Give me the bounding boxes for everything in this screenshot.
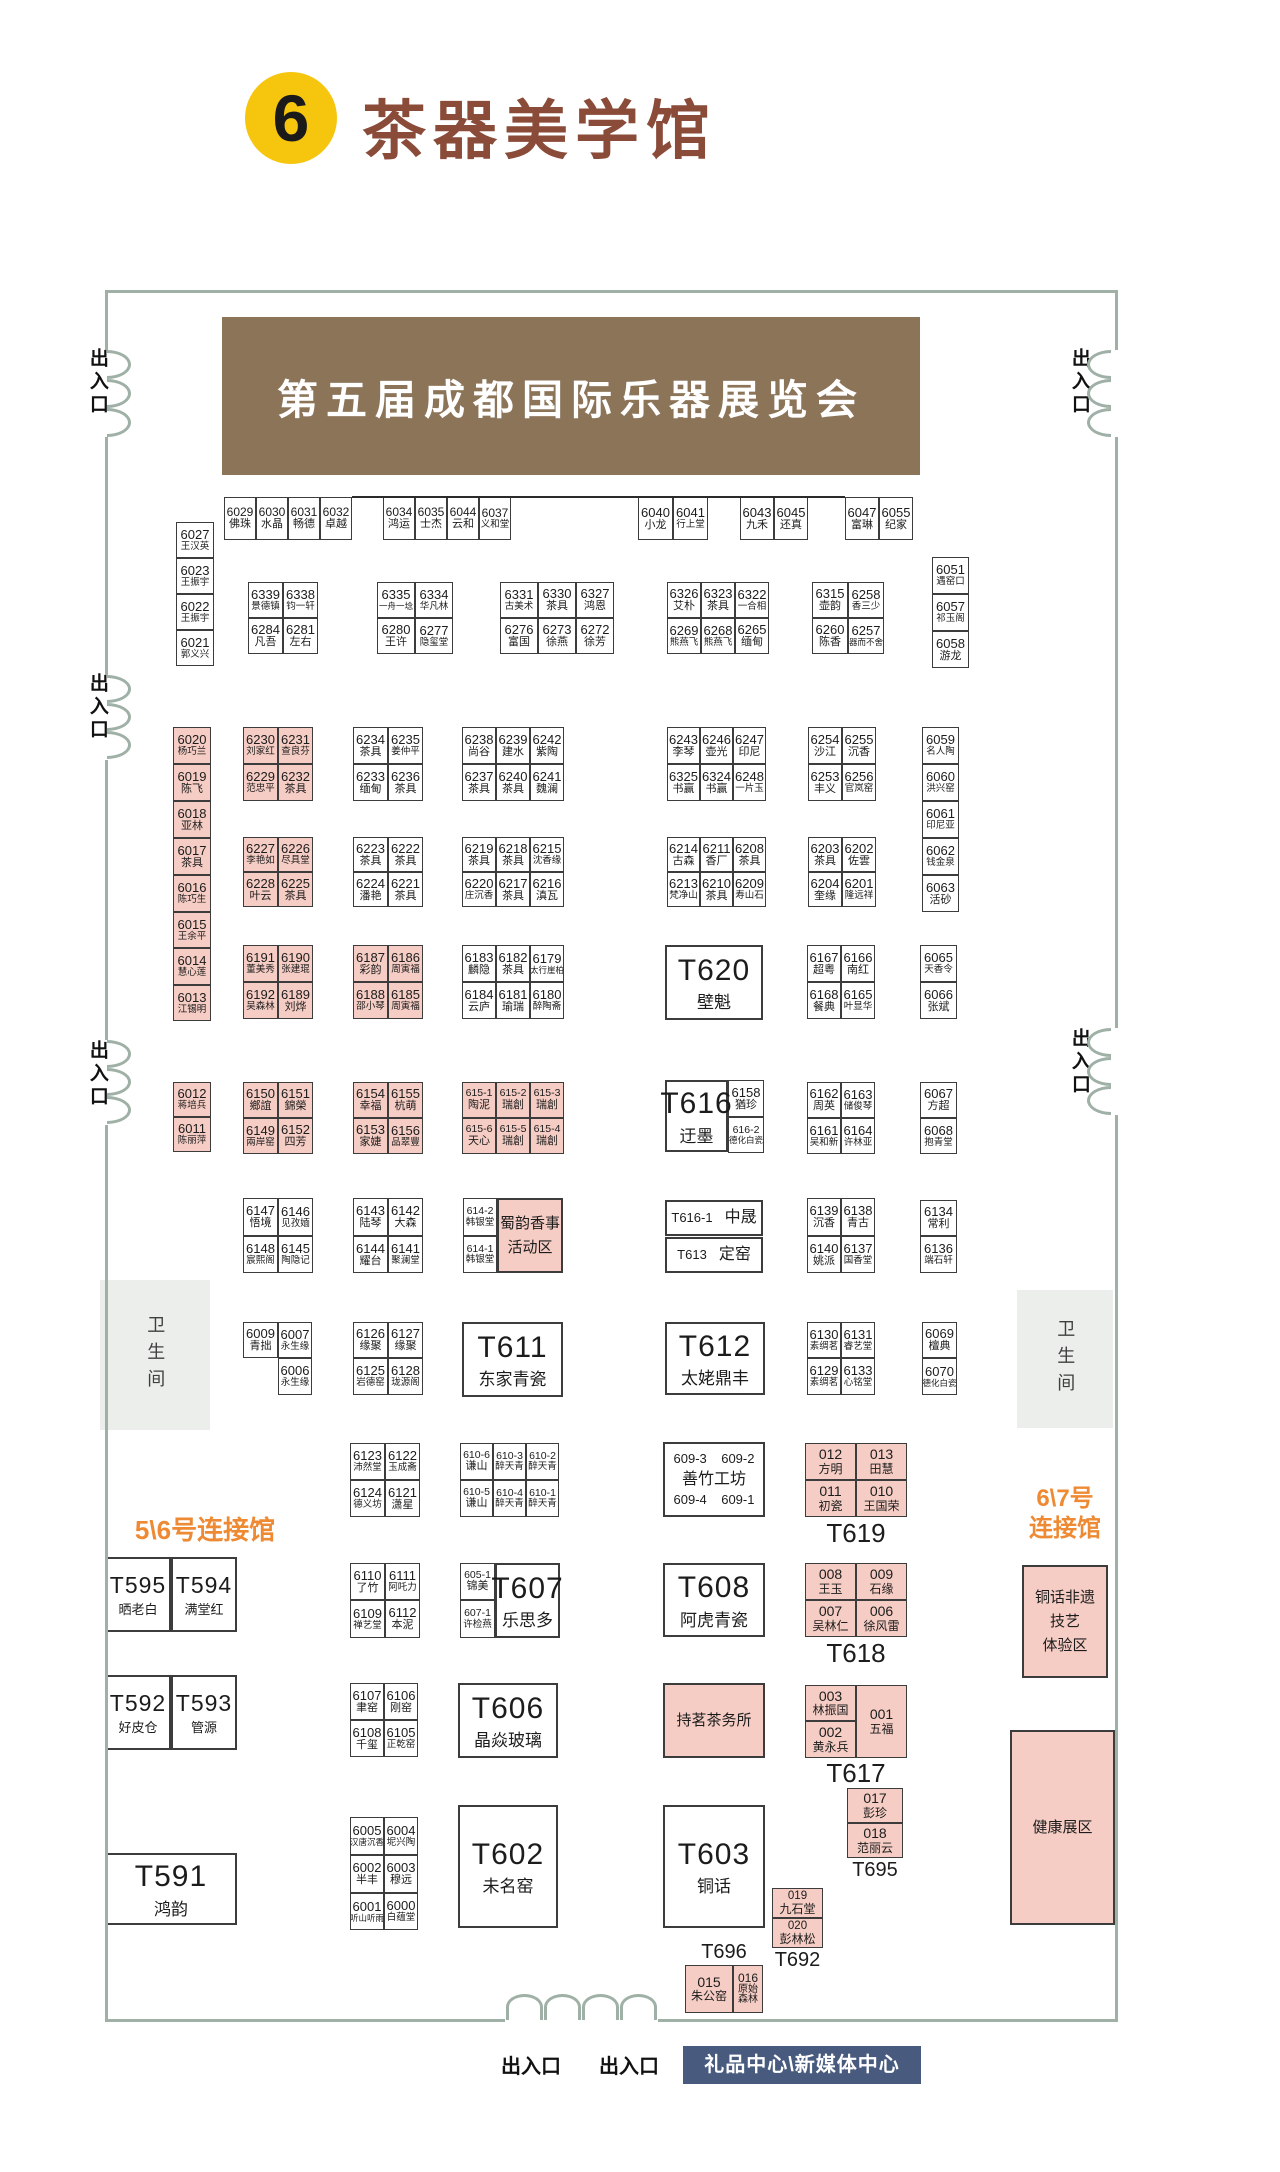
booth-615-6: 615-6天心 — [462, 1118, 496, 1154]
door-arc-icon — [107, 731, 131, 759]
booth-6034: 6034鸿运 — [383, 497, 415, 540]
booth-6005: 6005汉唐沉香 — [350, 1817, 384, 1855]
hall-T608: T608阿虎青瓷 — [663, 1563, 765, 1637]
booth-6124: 6124德义坊 — [350, 1480, 385, 1517]
booth-010: 010王国荣 — [856, 1480, 907, 1517]
booth-6231: 6231查良芬 — [278, 727, 313, 764]
booth-6139: 6139沉香 — [807, 1198, 841, 1236]
booth-6258: 6258香三少 — [848, 582, 884, 618]
booth-6230: 6230刘家红 — [243, 727, 278, 764]
hall-T612: T612太姥鼎丰 — [665, 1322, 765, 1395]
booth-6338: 6338钧一轩 — [283, 582, 318, 618]
hall-T603: T603铜话 — [663, 1805, 765, 1928]
booth-605-1: 605-1锦美 — [460, 1563, 495, 1600]
booth-6125: 6125岩德窑 — [353, 1358, 388, 1395]
booth-020: 020彭林松 — [772, 1918, 823, 1948]
booth-6223: 6223茶具 — [353, 837, 388, 872]
booth-6108: 6108千玺 — [350, 1720, 384, 1757]
booth-6019: 6019陈飞 — [173, 764, 211, 801]
booth-6269: 6269熊燕飞 — [667, 618, 701, 654]
booth-6067: 6067方超 — [920, 1082, 957, 1118]
booth-6112: 6112本泥 — [385, 1600, 420, 1638]
booth-6020: 6020杨巧兰 — [173, 727, 211, 764]
booth-6045: 6045还真 — [774, 497, 808, 540]
wall-segment — [105, 1125, 108, 2022]
booth-6224: 6224潘艳 — [353, 872, 388, 907]
booth-6009: 6009青拙 — [243, 1322, 278, 1358]
booth-6058: 6058游龙 — [932, 631, 969, 668]
booth-6209: 6209寿山石 — [733, 872, 766, 907]
booth-6060: 6060洪兴窑 — [922, 764, 959, 801]
booth-6044: 6044云和 — [447, 497, 479, 540]
booth-019: 019九石堂 — [772, 1888, 823, 1918]
booth-6145: 6145陶隐记 — [278, 1236, 313, 1273]
booth-011: 011初瓷 — [805, 1480, 856, 1517]
door-arc-icon — [107, 350, 131, 379]
booth-6109: 6109禅艺堂 — [350, 1600, 385, 1638]
booth-6142: 6142大森 — [388, 1198, 423, 1236]
door-arc-icon — [107, 408, 131, 437]
booth-6156: 6156品翠豐 — [388, 1118, 423, 1154]
booth-6122: 6122玉成斋 — [385, 1443, 420, 1480]
area-health-zone: 健康展区 — [1010, 1730, 1115, 1925]
hall-number-badge: 6 — [245, 72, 337, 164]
hall-T591: T591鸿韵 — [105, 1853, 237, 1925]
booth-6041: 6041行上堂 — [673, 497, 708, 540]
booth-6059: 6059名人陶 — [922, 727, 959, 764]
booth-614-1: 614-1韩银堂 — [463, 1236, 497, 1273]
hall-T606: T606晶焱玻璃 — [458, 1683, 558, 1758]
booth-6167: 6167超粤 — [807, 945, 841, 982]
booth-6168: 6168餐典 — [807, 982, 841, 1019]
label-gift-center: 礼品中心\新媒体中心 — [683, 2046, 921, 2084]
booth-6327: 6327鸿恩 — [576, 582, 614, 618]
exit-right-mid: 出入口 — [1066, 1020, 1092, 1104]
booth-6063: 6063活砂 — [922, 875, 959, 912]
booth-6260: 6260陈香 — [812, 618, 848, 654]
booth-6191: 6191董美秀 — [243, 945, 278, 982]
exit-right-top: 出入口 — [1066, 340, 1092, 424]
booth-6015: 6015王余平 — [173, 912, 211, 948]
label-T618: T618 — [805, 1638, 907, 1668]
booth-6187: 6187彩韵 — [353, 945, 388, 982]
booth-6213: 6213梵净山 — [667, 872, 700, 907]
booth-008: 008王玉 — [805, 1563, 856, 1600]
booth-6002: 6002半丰 — [350, 1855, 384, 1893]
exit-bottom-1: 出入口 — [496, 2054, 566, 2080]
area-tonghua-heritage: 铜话非遗技艺体验区 — [1022, 1565, 1108, 1678]
booth-610-6: 610-6谦山 — [460, 1443, 493, 1480]
booth-6061: 6061印尼亚 — [922, 801, 959, 838]
booth-6218: 6218茶具 — [496, 837, 530, 872]
booth-6021: 6021郭义兴 — [176, 630, 214, 666]
booth-6272: 6272徐芳 — [576, 618, 614, 654]
booth-6163: 6163储俊琴 — [841, 1082, 875, 1118]
booth-6210: 6210茶具 — [700, 872, 733, 907]
booth-6326: 6326艾朴 — [667, 582, 701, 618]
booth-6256: 6256官岚窑 — [842, 764, 876, 801]
door-arc-icon — [506, 1994, 543, 2020]
booth-6149: 6149兩岸窑 — [243, 1118, 278, 1154]
partition-line — [352, 496, 845, 498]
booth-6324: 6324书赢 — [700, 764, 733, 801]
booth-6123: 6123沛然堂 — [350, 1443, 385, 1480]
booth-6022: 6022王振宇 — [176, 594, 214, 630]
booth-614-2: 614-2韩银堂 — [463, 1198, 497, 1236]
booth-6147: 6147悟境 — [243, 1198, 278, 1236]
booth-6273: 6273徐燕 — [538, 618, 576, 654]
exhibition-banner: 第五届成都国际乐器展览会 — [222, 317, 920, 475]
booth-6228: 6228叶云 — [243, 872, 278, 907]
booth-6070: 6070德化白瓷 — [922, 1358, 957, 1395]
booth-013: 013田慧 — [856, 1443, 907, 1480]
booth-6237: 6237茶具 — [462, 764, 496, 801]
booth-6154: 6154幸福 — [353, 1082, 388, 1118]
hall-T592: T592好皮仓 — [105, 1675, 171, 1750]
booth-6222: 6222茶具 — [388, 837, 423, 872]
booth-6255: 6255沉香 — [842, 727, 876, 764]
booth-615-3: 615-3瑞創 — [530, 1082, 564, 1118]
booth-610-2: 610-2醉天青 — [526, 1443, 559, 1480]
booth-6234: 6234茶具 — [353, 727, 388, 764]
booth-6007: 6007永生缘 — [278, 1322, 312, 1358]
booth-6179: 6179太行崖柏 — [530, 945, 564, 982]
booth-6151: 6151錦榮 — [278, 1082, 313, 1118]
booth-6014: 6014慧心莲 — [173, 948, 211, 985]
booth-6221: 6221茶具 — [388, 872, 423, 907]
booth-6136: 6136端石轩 — [920, 1236, 957, 1273]
hall-T616-1: T616-1中晟 — [665, 1200, 763, 1236]
door-arc-icon — [544, 1994, 581, 2020]
area-chiming-tea-office: 持茗茶务所 — [663, 1683, 765, 1758]
booth-6146: 6146见孜媔 — [278, 1198, 313, 1236]
wall-segment — [105, 437, 108, 675]
booth-6216: 6216滇瓦 — [530, 872, 564, 907]
label-connector-67: 6\7号连接馆 — [1015, 1484, 1115, 1544]
door-arc-icon — [620, 1994, 657, 2020]
hall-T595: T595晒老白 — [105, 1557, 171, 1632]
booth-6055: 6055纪家 — [879, 497, 913, 540]
booth-6012: 6012蒋培兵 — [173, 1082, 211, 1117]
booth-6133: 6133心铭堂 — [841, 1358, 875, 1395]
booth-6011: 6011陈丽萍 — [173, 1117, 211, 1152]
wall-segment — [1115, 437, 1118, 1028]
booth-6181: 6181瑜瑞 — [496, 982, 530, 1019]
door-arc-icon — [107, 379, 131, 408]
booth-6161: 6161吴和新 — [807, 1118, 841, 1154]
booth-6184: 6184云庐 — [462, 982, 496, 1019]
booth-6137: 6137国香堂 — [841, 1236, 875, 1273]
booth-6166: 6166南红 — [841, 945, 875, 982]
booth-6013: 6013江锡明 — [173, 985, 211, 1021]
booth-6004: 6004坭兴陶 — [384, 1817, 418, 1855]
booth-6143: 6143陆琴 — [353, 1198, 388, 1236]
booth-003: 003林振国 — [805, 1685, 856, 1721]
area-shuyun-incense: 蜀韵香事活动区 — [497, 1198, 563, 1273]
booth-6016: 6016陈巧生 — [173, 875, 211, 912]
booth-6331: 6331古美术 — [500, 582, 538, 618]
booth-6150: 6150鄉誼 — [243, 1082, 278, 1118]
booth-6006: 6006永生缘 — [278, 1358, 312, 1395]
label-T695: T695 — [847, 1858, 903, 1882]
booth-6105: 6105正乾窑 — [384, 1720, 418, 1757]
booth-6233: 6233缅甸 — [353, 764, 388, 801]
wall-segment — [105, 293, 108, 350]
booth-607-1: 607-1许检燕 — [460, 1600, 495, 1638]
booth-6239: 6239建水 — [496, 727, 530, 764]
booth-6106: 6106刚窑 — [384, 1683, 418, 1720]
booth-6334: 6334华凡林 — [415, 582, 453, 618]
booth-6138: 6138青古 — [841, 1198, 875, 1236]
hall-T607: T607乐思多 — [495, 1563, 560, 1638]
booth-6241: 6241魏澜 — [530, 764, 564, 801]
booth-6182: 6182茶具 — [496, 945, 530, 982]
booth-015: 015朱公窑 — [685, 1965, 733, 2013]
booth-001: 001五福 — [856, 1685, 907, 1758]
booth-6031: 6031畅德 — [288, 497, 320, 540]
booth-6253: 6253丰义 — [808, 764, 842, 801]
booth-6339: 6339景德镇 — [248, 582, 283, 618]
booth-6037: 6037义和堂 — [479, 497, 511, 540]
restroom-left: 卫生间 — [100, 1280, 210, 1430]
wall-segment — [105, 290, 1118, 293]
wall-segment — [105, 2019, 505, 2022]
restroom-right: 卫生间 — [1017, 1290, 1113, 1428]
booth-6189: 6189刘烨 — [278, 982, 313, 1019]
booth-6068: 6068抱青堂 — [920, 1118, 957, 1154]
booth-6144: 6144耀台 — [353, 1236, 388, 1273]
booth-6227: 6227李艳如 — [243, 837, 278, 872]
hall-T594: T594满堂红 — [171, 1557, 237, 1632]
booth-6110: 6110了竹 — [350, 1563, 385, 1600]
booth-6131: 6131睿艺堂 — [841, 1322, 875, 1358]
booth-6003: 6003穆远 — [384, 1855, 418, 1893]
booth-6214: 6214古森 — [667, 837, 700, 872]
hall-T620: T620壁魁 — [665, 945, 763, 1020]
booth-6035: 6035士杰 — [415, 497, 447, 540]
booth-6107: 6107聿窑 — [350, 1683, 384, 1720]
booth-615-4: 615-4瑞創 — [530, 1118, 564, 1154]
booth-615-1: 615-1陶泥 — [462, 1082, 496, 1118]
exit-bottom-2: 出入口 — [594, 2054, 664, 2080]
booth-6001: 6001听山听雨 — [350, 1893, 384, 1930]
booth-6235: 6235姜仲平 — [388, 727, 423, 764]
label-T696: T696 — [685, 1940, 763, 1964]
booth-6162: 6162周英 — [807, 1082, 841, 1118]
booth-6232: 6232茶具 — [278, 764, 313, 801]
booth-6065: 6065天香令 — [920, 945, 957, 982]
booth-610-3: 610-3醉天青 — [493, 1443, 526, 1480]
booth-6276: 6276富国 — [500, 618, 538, 654]
booth-6217: 6217茶具 — [496, 872, 530, 907]
booth-6248: 6248一片玉 — [733, 764, 766, 801]
booth-6225: 6225茶具 — [278, 872, 313, 907]
booth-6236: 6236茶具 — [388, 764, 423, 801]
booth-6180: 6180醉陶斋 — [530, 982, 564, 1019]
booth-6129: 6129素绸茗 — [807, 1358, 841, 1395]
door-arc-icon — [107, 675, 131, 703]
booth-6040: 6040小龙 — [638, 497, 673, 540]
door-arc-icon — [582, 1994, 619, 2020]
booth-6229: 6229范忠平 — [243, 764, 278, 801]
booth-6069: 6069檀典 — [922, 1322, 957, 1358]
booth-6062: 6062钱金泉 — [922, 838, 959, 875]
booth-6183: 6183麟隐 — [462, 945, 496, 982]
label-T692: T692 — [772, 1948, 823, 1972]
booth-6247: 6247印尼 — [733, 727, 766, 764]
booth-6203: 6203茶具 — [808, 837, 842, 872]
booth-6257: 6257器而不舍 — [848, 618, 884, 654]
booth-6017: 6017茶具 — [173, 838, 211, 875]
booth-6027: 6027王汉英 — [176, 522, 214, 558]
booth-6032: 6032卓越 — [320, 497, 352, 540]
booth-6246: 6246壶光 — [700, 727, 733, 764]
booth-6204: 6204奎缘 — [808, 872, 842, 907]
booth-609-group: 609-3 609-2善竹工坊609-4 609-1 — [663, 1442, 765, 1517]
booth-6201: 6201隆远祥 — [842, 872, 876, 907]
booth-6280: 6280王许 — [377, 618, 415, 654]
booth-002: 002黄永兵 — [805, 1721, 856, 1758]
booth-6268: 6268熊燕飞 — [701, 618, 735, 654]
booth-6254: 6254沙江 — [808, 727, 842, 764]
booth-6330: 6330茶具 — [538, 582, 576, 618]
booth-6243: 6243李琴 — [667, 727, 700, 764]
booth-610-4: 610-4醉天青 — [493, 1480, 526, 1517]
booth-6043: 6043九禾 — [740, 497, 774, 540]
hall-T613: T613定窑 — [665, 1237, 763, 1273]
door-arc-icon — [107, 1068, 131, 1096]
booth-6148: 6148宸熙阁 — [243, 1236, 278, 1273]
booth-6121: 6121潇星 — [385, 1480, 420, 1517]
booth-6240: 6240茶具 — [496, 764, 530, 801]
booth-6130: 6130素绸茗 — [807, 1322, 841, 1358]
label-T619: T619 — [805, 1518, 907, 1548]
wall-segment — [1115, 293, 1118, 350]
wall-segment — [658, 2019, 1118, 2022]
booth-610-5: 610-5谦山 — [460, 1480, 493, 1517]
booth-006: 006徐风雷 — [856, 1600, 907, 1637]
booth-018: 018范丽云 — [847, 1823, 903, 1858]
booth-6188: 6188邵小琴 — [353, 982, 388, 1019]
booth-6265: 6265缅甸 — [735, 618, 769, 654]
booth-6030: 6030水晶 — [256, 497, 288, 540]
booth-6127: 6127缘聚 — [388, 1322, 423, 1358]
door-arc-icon — [107, 1040, 131, 1068]
booth-6242: 6242紫陶 — [530, 727, 564, 764]
booth-6165: 6165叶显华 — [841, 982, 875, 1019]
booth-6152: 6152四芳 — [278, 1118, 313, 1154]
booth-6018: 6018亚林 — [173, 801, 211, 838]
wall-segment — [1115, 1115, 1118, 2022]
door-arc-icon — [107, 1096, 131, 1124]
booth-6277: 6277隐玺堂 — [415, 618, 453, 654]
booth-009: 009石缘 — [856, 1563, 907, 1600]
booth-6215: 6215沈香缘 — [530, 837, 564, 872]
booth-6315: 6315壶韵 — [812, 582, 848, 618]
booth-616-2: 616-2德化白瓷 — [728, 1117, 764, 1153]
booth-6322: 6322一合相 — [735, 582, 769, 618]
booth-615-5: 615-5瑞創 — [496, 1118, 530, 1154]
booth-007: 007吴林仁 — [805, 1600, 856, 1637]
booth-6047: 6047富琳 — [845, 497, 879, 540]
booth-6153: 6153家婕 — [353, 1118, 388, 1154]
booth-6164: 6164许林亚 — [841, 1118, 875, 1154]
hall-T616: T616迂墨 — [665, 1080, 728, 1152]
booth-6158: 6158猶珍 — [728, 1080, 764, 1117]
booth-6226: 6226尽具堂 — [278, 837, 313, 872]
booth-6325: 6325书赢 — [667, 764, 700, 801]
booth-6023: 6023王振宇 — [176, 558, 214, 594]
label-connector-56: 5\6号连接馆 — [95, 1514, 315, 1548]
floor-plan-canvas: 6 茶器美学馆 第五届成都国际乐器展览会 6029佛珠6030水晶6031畅德6… — [0, 0, 1280, 2172]
page-title: 茶器美学馆 — [362, 80, 717, 172]
booth-6219: 6219茶具 — [462, 837, 496, 872]
booth-017: 017彭珍 — [847, 1788, 903, 1823]
booth-6190: 6190张建琨 — [278, 945, 313, 982]
booth-6323: 6323茶具 — [701, 582, 735, 618]
booth-6126: 6126缘聚 — [353, 1322, 388, 1358]
label-T617: T617 — [805, 1758, 907, 1788]
booth-6284: 6284凡吾 — [248, 618, 283, 654]
booth-6335: 6335一舟一埝 — [377, 582, 415, 618]
booth-6051: 6051遇窑口 — [932, 557, 969, 594]
booth-6238: 6238尚谷 — [462, 727, 496, 764]
booth-6141: 6141聚澜堂 — [388, 1236, 423, 1273]
booth-6186: 6186周寅福 — [388, 945, 423, 982]
hall-T593: T593管源 — [171, 1675, 237, 1750]
booth-6185: 6185周寅福 — [388, 982, 423, 1019]
booth-6208: 6208茶具 — [733, 837, 766, 872]
booth-6211: 6211香厂 — [700, 837, 733, 872]
hall-T602: T602未名窑 — [458, 1805, 558, 1928]
door-arc-icon — [107, 703, 131, 731]
booth-6128: 6128珑源阁 — [388, 1358, 423, 1395]
booth-6155: 6155杭萌 — [388, 1082, 423, 1118]
wall-segment — [105, 760, 108, 1040]
booth-6192: 6192吴森林 — [243, 982, 278, 1019]
booth-6220: 6220庄沉香 — [462, 872, 496, 907]
booth-610-1: 610-1醉天青 — [526, 1480, 559, 1517]
booth-016: 016原始森林 — [733, 1965, 763, 2013]
booth-6111: 6111阿吒力 — [385, 1563, 420, 1600]
booth-6140: 6140姚派 — [807, 1236, 841, 1273]
booth-6281: 6281左右 — [283, 618, 318, 654]
booth-615-2: 615-2瑞創 — [496, 1082, 530, 1118]
booth-6134: 6134常利 — [920, 1200, 957, 1236]
booth-6202: 6202佐雲 — [842, 837, 876, 872]
booth-6057: 6057祁玉阁 — [932, 594, 969, 631]
hall-T611: T611东家青瓷 — [462, 1322, 563, 1397]
booth-6066: 6066张斌 — [920, 982, 957, 1019]
booth-6000: 6000白蕴堂 — [384, 1893, 418, 1930]
booth-012: 012方明 — [805, 1443, 856, 1480]
booth-6029: 6029佛珠 — [224, 497, 256, 540]
